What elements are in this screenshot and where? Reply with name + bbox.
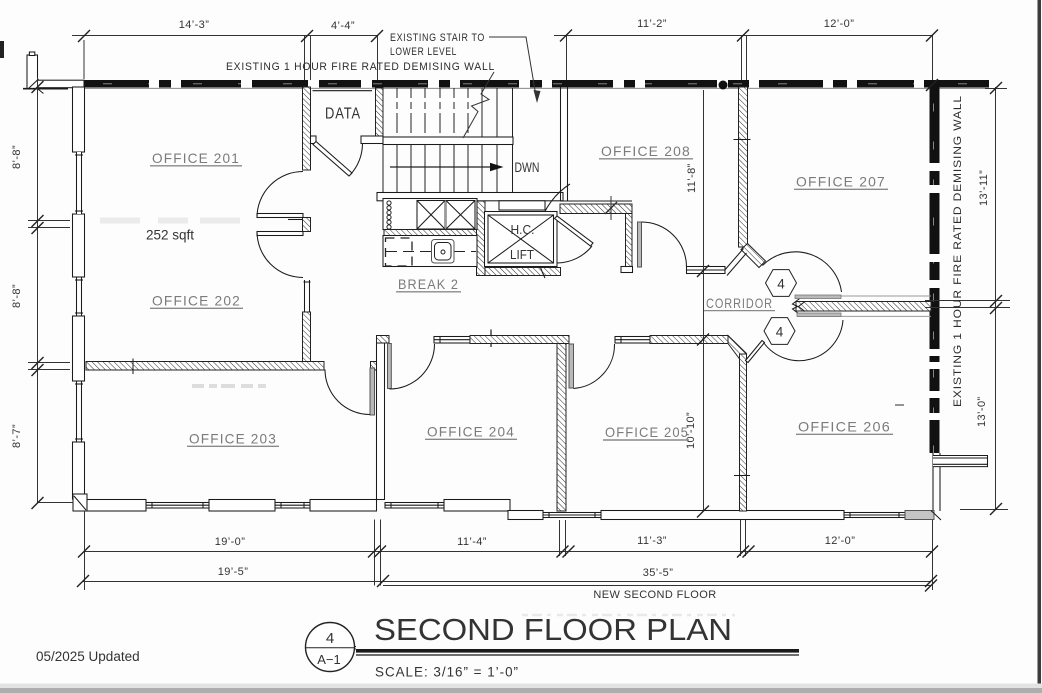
svg-text:NEW SECOND FLOOR: NEW SECOND FLOOR [593, 589, 716, 601]
svg-text:OFFICE 203: OFFICE 203 [189, 431, 277, 447]
svg-text:SCALE: 3/16” = 1’-0”: SCALE: 3/16” = 1’-0” [375, 665, 519, 680]
svg-text:DATA: DATA [325, 106, 361, 123]
svg-text:OFFICE 206: OFFICE 206 [798, 419, 891, 435]
svg-text:19’-0”: 19’-0” [215, 536, 246, 548]
svg-text:OFFICE 202: OFFICE 202 [152, 293, 241, 309]
svg-text:14’-3”: 14’-3” [179, 19, 210, 31]
svg-text:DWN: DWN [515, 160, 540, 175]
svg-text:EXISTING 1 HOUR FIRE RATED DEM: EXISTING 1 HOUR FIRE RATED DEMISING WALL [226, 61, 495, 73]
svg-text:8’-7”: 8’-7” [11, 424, 23, 448]
svg-text:4’-4”: 4’-4” [331, 20, 355, 32]
svg-text:CORRIDOR: CORRIDOR [706, 295, 773, 311]
svg-text:A−1: A−1 [317, 652, 341, 667]
svg-text:SECOND FLOOR PLAN: SECOND FLOOR PLAN [374, 613, 732, 647]
svg-text:11’-8”: 11’-8” [686, 163, 698, 193]
svg-text:OFFICE 205: OFFICE 205 [605, 424, 689, 440]
svg-text:35’-5”: 35’-5” [643, 567, 674, 579]
svg-text:OFFICE 204: OFFICE 204 [427, 424, 515, 440]
svg-text:OFFICE 201: OFFICE 201 [152, 150, 240, 166]
svg-text:LOWER LEVEL: LOWER LEVEL [390, 46, 457, 58]
svg-text:8’-8”: 8’-8” [11, 145, 23, 169]
svg-text:BREAK 2: BREAK 2 [398, 276, 459, 292]
svg-text:OFFICE 207: OFFICE 207 [796, 174, 886, 190]
svg-text:11’-4”: 11’-4” [457, 536, 487, 548]
svg-text:EXISTING STAIR TO: EXISTING STAIR TO [390, 32, 485, 44]
svg-text:H.C.: H.C. [511, 222, 535, 237]
svg-text:11’-3”: 11’-3” [637, 535, 667, 547]
svg-text:4: 4 [776, 325, 784, 340]
svg-text:EXISTING 1 HOUR FIRE RATED DEM: EXISTING 1 HOUR FIRE RATED DEMISING WALL [952, 95, 964, 407]
svg-text:05/2025 Updated: 05/2025 Updated [36, 649, 140, 664]
svg-text:13’-0”: 13’-0” [976, 396, 988, 427]
svg-text:12’-0”: 12’-0” [825, 535, 856, 547]
svg-text:11’-2”: 11’-2” [637, 18, 667, 30]
svg-text:LIFT: LIFT [510, 247, 534, 262]
svg-text:4: 4 [777, 277, 785, 292]
svg-text:OFFICE 208: OFFICE 208 [601, 143, 691, 159]
svg-text:12’-0”: 12’-0” [824, 18, 855, 30]
svg-text:4: 4 [326, 630, 334, 647]
svg-text:19’-5”: 19’-5” [218, 566, 249, 578]
svg-text:252 sqft: 252 sqft [146, 228, 194, 243]
svg-text:13’-11”: 13’-11” [978, 170, 990, 206]
svg-text:8’-8”: 8’-8” [11, 284, 23, 308]
